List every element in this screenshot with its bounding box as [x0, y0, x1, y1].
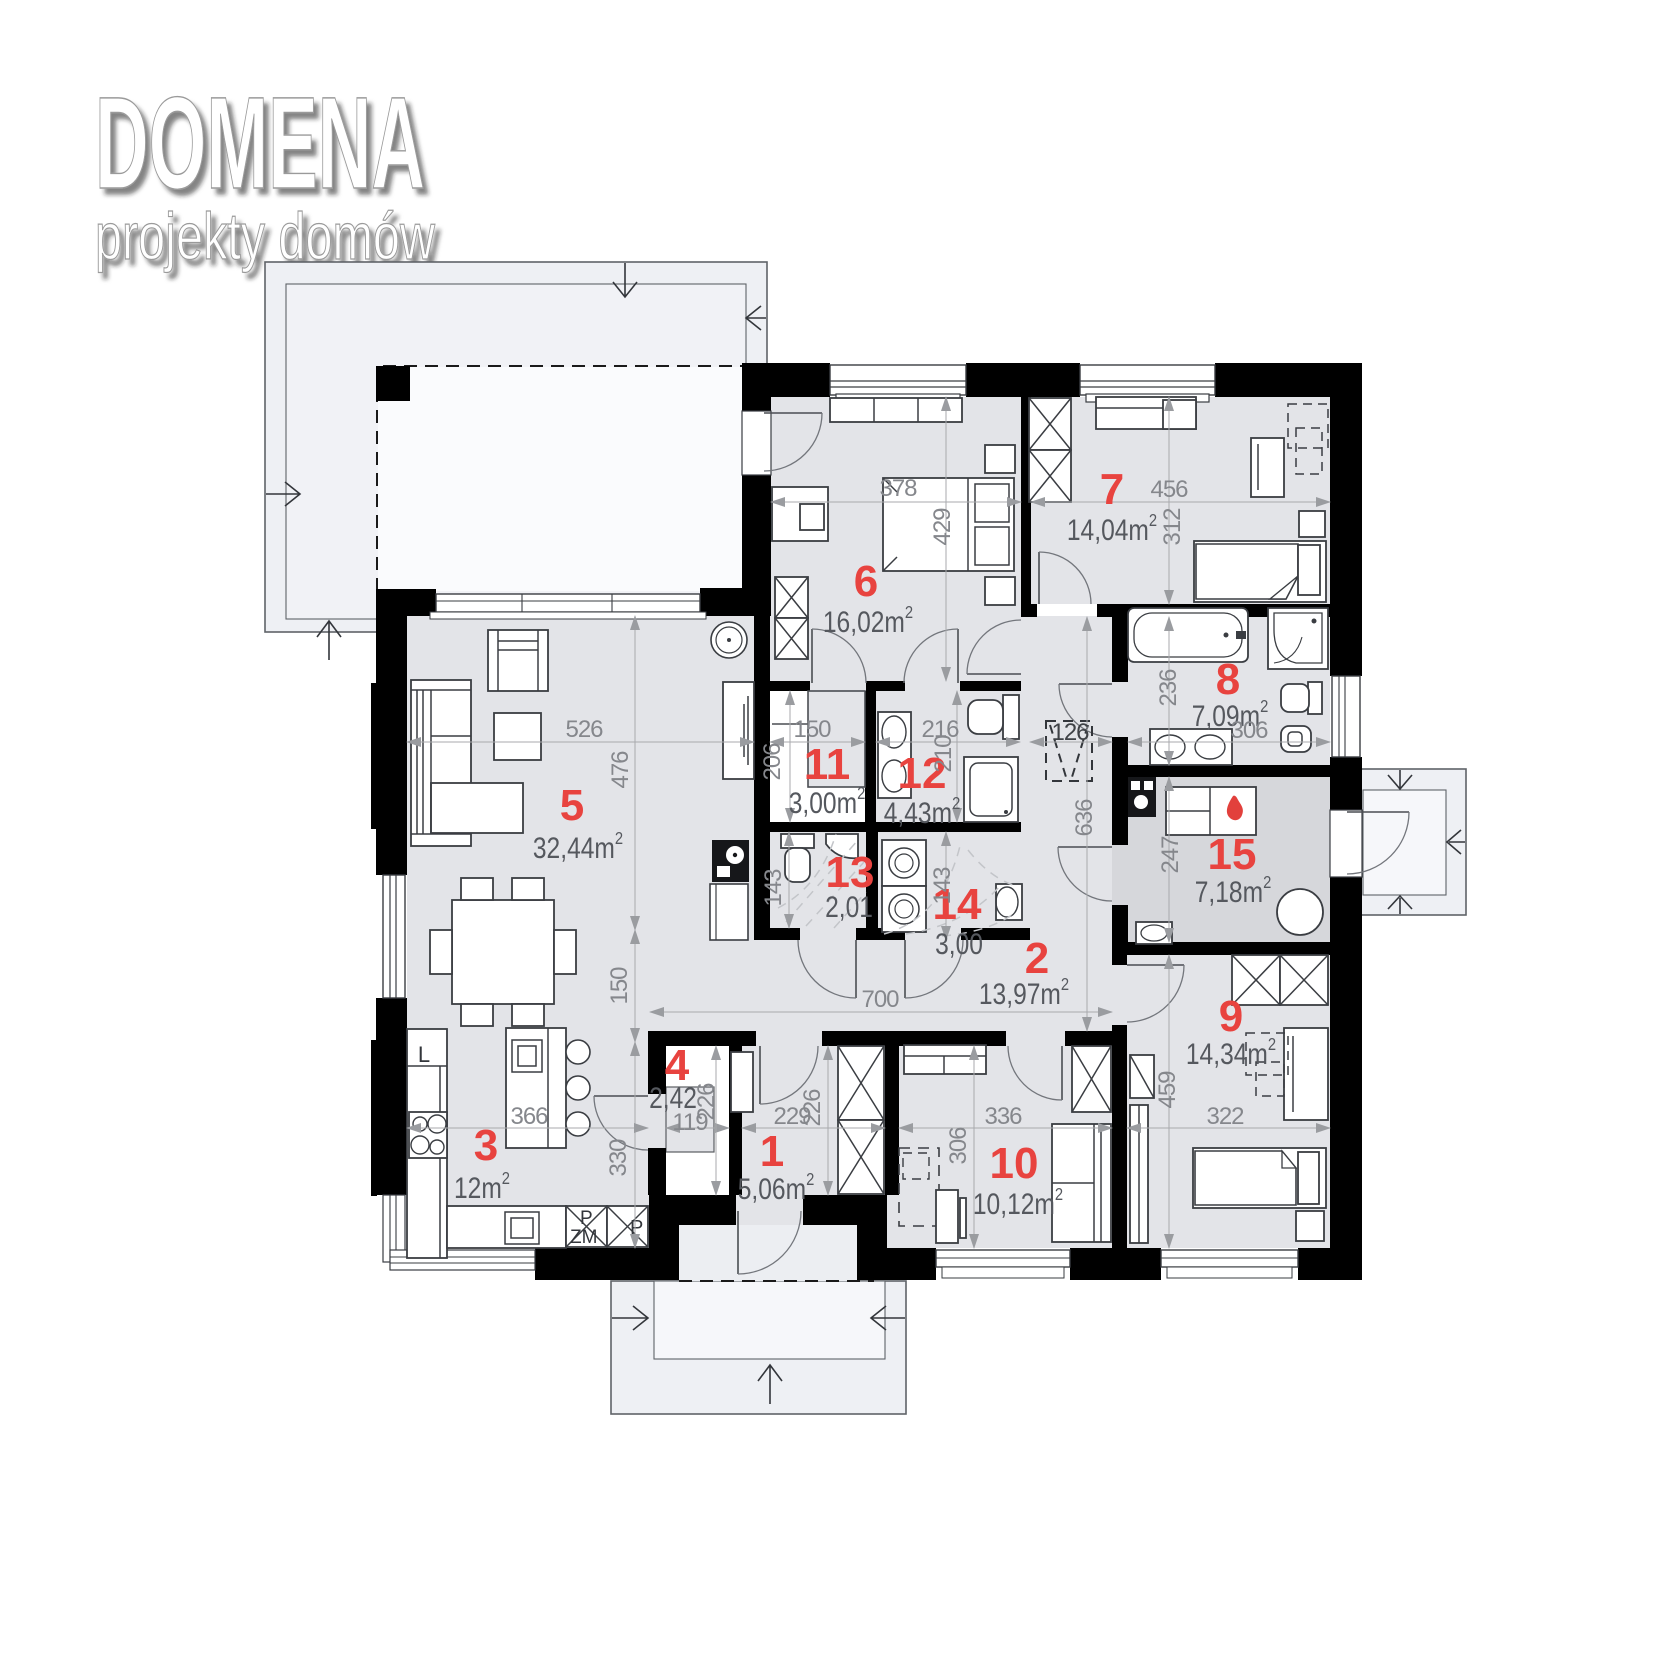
- svg-text:459: 459: [1154, 1071, 1181, 1109]
- svg-text:7,18m2: 7,18m2: [1195, 873, 1272, 909]
- svg-text:ZM: ZM: [570, 1227, 597, 1248]
- svg-text:526: 526: [565, 716, 603, 743]
- svg-text:10,12m2: 10,12m2: [973, 1185, 1063, 1221]
- svg-text:12m2: 12m2: [454, 1169, 510, 1205]
- svg-text:636: 636: [1071, 799, 1098, 837]
- svg-text:9: 9: [1219, 992, 1243, 1041]
- svg-text:330: 330: [605, 1139, 632, 1177]
- svg-text:L: L: [418, 1042, 430, 1067]
- svg-text:143: 143: [760, 869, 787, 907]
- svg-text:4,43m2: 4,43m2: [884, 794, 961, 830]
- svg-text:312: 312: [1159, 508, 1186, 546]
- svg-text:456: 456: [1150, 476, 1188, 503]
- svg-text:2: 2: [1025, 934, 1049, 983]
- svg-text:210: 210: [930, 735, 957, 773]
- svg-text:7: 7: [1100, 465, 1124, 514]
- svg-text:13,97m2: 13,97m2: [979, 975, 1069, 1011]
- svg-text:P: P: [580, 1208, 593, 1229]
- svg-text:336: 336: [984, 1103, 1022, 1130]
- svg-text:429: 429: [929, 508, 956, 546]
- svg-text:236: 236: [1155, 669, 1182, 707]
- svg-text:306: 306: [945, 1127, 972, 1165]
- svg-text:378: 378: [879, 475, 917, 502]
- svg-text:247: 247: [1157, 836, 1184, 874]
- svg-text:206: 206: [759, 743, 786, 781]
- svg-text:700: 700: [861, 986, 899, 1013]
- svg-text:150: 150: [793, 716, 831, 743]
- svg-text:3,00m2: 3,00m2: [789, 784, 866, 820]
- svg-text:32,44m2: 32,44m2: [533, 829, 623, 865]
- svg-text:14,34m2: 14,34m2: [1186, 1035, 1276, 1071]
- svg-text:P: P: [630, 1217, 643, 1239]
- svg-text:16,02m2: 16,02m2: [823, 603, 913, 639]
- svg-text:15: 15: [1208, 830, 1257, 879]
- svg-text:3: 3: [474, 1121, 498, 1170]
- svg-text:143: 143: [929, 867, 956, 905]
- svg-text:5: 5: [560, 781, 584, 830]
- svg-text:2,01: 2,01: [825, 890, 873, 924]
- svg-text:DOMENA: DOMENA: [95, 69, 425, 216]
- svg-text:476: 476: [607, 751, 634, 789]
- svg-text:14,04m2: 14,04m2: [1067, 511, 1157, 547]
- svg-text:1: 1: [760, 1127, 784, 1176]
- svg-text:10: 10: [990, 1139, 1039, 1188]
- svg-text:306: 306: [1230, 717, 1268, 744]
- svg-text:11: 11: [804, 740, 851, 789]
- svg-text:322: 322: [1206, 1103, 1244, 1130]
- svg-text:3,00: 3,00: [935, 927, 983, 961]
- svg-text:226: 226: [693, 1083, 720, 1121]
- svg-text:226: 226: [799, 1089, 826, 1127]
- svg-text:366: 366: [510, 1103, 548, 1130]
- svg-text:5,06m2: 5,06m2: [738, 1170, 815, 1206]
- svg-text:8: 8: [1216, 655, 1240, 704]
- svg-text:150: 150: [606, 967, 633, 1005]
- svg-text:6: 6: [854, 557, 878, 606]
- svg-text:126: 126: [1051, 719, 1089, 746]
